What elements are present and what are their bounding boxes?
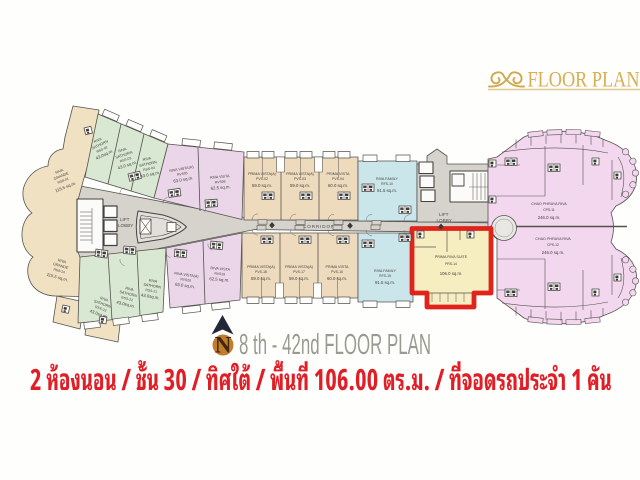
svg-text:PRIMA VISTA(A): PRIMA VISTA(A) — [285, 265, 313, 269]
svg-text:CHAO PHRAYA RIVA: CHAO PHRAYA RIVA — [535, 237, 571, 241]
svg-text:CHAO PHRAYA RIVA: CHAO PHRAYA RIVA — [531, 202, 567, 206]
svg-text:LIFT: LIFT — [120, 217, 130, 222]
svg-text:59.0 sq.m.: 59.0 sq.m. — [252, 183, 272, 188]
svg-text:246.0 sq.m.: 246.0 sq.m. — [538, 215, 560, 220]
svg-text:N: N — [215, 333, 232, 358]
svg-text:PRIMA VISTA(A): PRIMA VISTA(A) — [247, 265, 275, 269]
svg-text:LOBBY: LOBBY — [437, 218, 452, 223]
svg-text:91.5 sq.m.: 91.5 sq.m. — [377, 188, 397, 193]
svg-text:60.0 sq.m.: 60.0 sq.m. — [327, 276, 347, 281]
svg-text:PVS-03: PVS-03 — [294, 177, 306, 181]
svg-text:PVS-04: PVS-04 — [332, 177, 344, 181]
svg-text:106.0 sq.m.: 106.0 sq.m. — [440, 271, 462, 276]
svg-text:PRIMA VISTA(A): PRIMA VISTA(A) — [286, 172, 314, 176]
svg-text:LIFT: LIFT — [439, 212, 449, 217]
svg-text:RFS-15: RFS-15 — [379, 274, 391, 278]
svg-text:246.0 sq.m.: 246.0 sq.m. — [542, 250, 564, 255]
svg-text:59.0 sq.m.: 59.0 sq.m. — [290, 183, 310, 188]
svg-text:PRIMA VISTA(A): PRIMA VISTA(A) — [248, 172, 276, 176]
svg-text:59.0 sq.m.: 59.0 sq.m. — [251, 276, 271, 281]
svg-text:RIVA FAMILY: RIVA FAMILY — [374, 269, 397, 273]
svg-text:PVS-16: PVS-16 — [331, 270, 343, 274]
svg-text:60.0 sq.m.: 60.0 sq.m. — [328, 183, 348, 188]
svg-text:59.0 sq.m.: 59.0 sq.m. — [289, 276, 309, 281]
svg-text:PVS-18: PVS-18 — [255, 270, 267, 274]
svg-text:PRIMA RIVA SUITE: PRIMA RIVA SUITE — [435, 255, 468, 259]
svg-text:RIVA FAMILY: RIVA FAMILY — [376, 177, 399, 181]
svg-text:FLOOR PLAN: FLOOR PLAN — [528, 67, 640, 92]
svg-text:LOBBY: LOBBY — [118, 223, 133, 228]
svg-text:CPS-11: CPS-11 — [543, 208, 555, 212]
svg-text:CORRIDOR: CORRIDOR — [303, 224, 335, 229]
svg-text:91.5 sq.m.: 91.5 sq.m. — [375, 280, 395, 285]
svg-text:8 th - 42nd FLOOR PLAN: 8 th - 42nd FLOOR PLAN — [239, 329, 431, 361]
svg-text:PRS-14: PRS-14 — [445, 262, 457, 266]
svg-text:PVS-02: PVS-02 — [256, 177, 268, 181]
svg-text:PRIMA VISTA: PRIMA VISTA — [326, 265, 349, 269]
svg-text:CPS-12: CPS-12 — [547, 243, 559, 247]
svg-text:PVS-17: PVS-17 — [293, 270, 305, 274]
svg-text:RFS-10: RFS-10 — [381, 182, 393, 186]
